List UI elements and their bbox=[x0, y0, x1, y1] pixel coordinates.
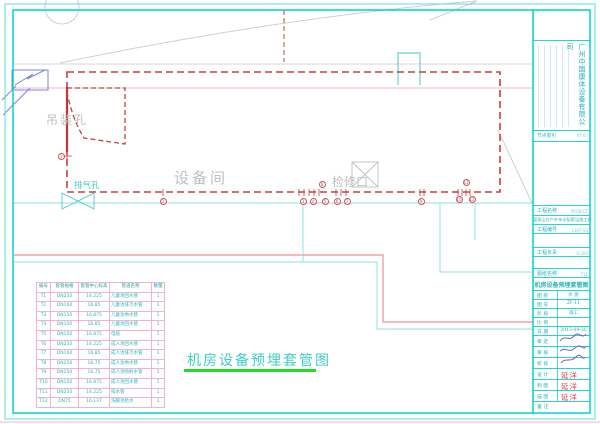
title-block-divider bbox=[533, 215, 590, 216]
table-cell: DN150 bbox=[51, 312, 79, 322]
title-block-divider bbox=[533, 247, 590, 248]
sign-label: 制 图 bbox=[537, 382, 548, 389]
table-cell: DN75 bbox=[51, 398, 79, 408]
handwritten-signature bbox=[558, 354, 588, 368]
table-cell: DN250 bbox=[51, 360, 79, 370]
project-name-label: 工程名称 bbox=[537, 207, 557, 214]
balloon-4: 4 bbox=[310, 198, 317, 205]
table-cell: 儿童池回水管 bbox=[110, 321, 152, 331]
meta-label: 比 例 bbox=[537, 319, 548, 326]
table-cell: T11 bbox=[37, 389, 51, 399]
meta-value: 施工 bbox=[558, 310, 589, 316]
title-block-divider bbox=[533, 308, 590, 309]
table-cell: 儿童池回水管 bbox=[110, 293, 152, 303]
project-lead-value: 0.200 bbox=[558, 251, 588, 256]
table-cell: DN250 bbox=[51, 369, 79, 379]
table-cell: 电缆 bbox=[110, 331, 152, 341]
table-cell: 16.75 bbox=[79, 369, 110, 379]
drawing-name-label: 图纸名称 bbox=[537, 270, 557, 277]
sign-label: 设 计 bbox=[537, 371, 548, 378]
table-cell: 1 bbox=[152, 398, 165, 408]
drawing-name-value: 机房设备预埋套管图 bbox=[533, 280, 590, 289]
table-cell: 16.75 bbox=[79, 360, 110, 370]
sign-label: 描 图 bbox=[537, 393, 548, 400]
meta-label: 图 号 bbox=[537, 301, 548, 308]
title-block-divider bbox=[533, 205, 590, 206]
table-cell: 成人池喷射水管 bbox=[110, 369, 152, 379]
table-header-cell: 数量 bbox=[152, 283, 165, 293]
table-cell: 1 bbox=[152, 369, 165, 379]
company-info-microtext bbox=[538, 45, 572, 127]
title-block-divider bbox=[533, 141, 590, 142]
access-hatch-label: 检修口 bbox=[332, 173, 368, 190]
exhaust-fan-symbol bbox=[62, 193, 94, 209]
title-block-divider bbox=[533, 233, 590, 234]
balloon-1: 1 bbox=[58, 153, 65, 160]
sign-label: 审 定 bbox=[537, 338, 548, 345]
table-header-cell: 套管中心标高 bbox=[79, 283, 110, 293]
table-cell: 1 bbox=[152, 341, 165, 351]
table-cell: T9 bbox=[37, 369, 51, 379]
table-cell: 16.225 bbox=[79, 341, 110, 351]
table-cell: 16.875 bbox=[79, 312, 110, 322]
title-block-divider bbox=[533, 277, 590, 278]
table-cell: T10 bbox=[37, 379, 51, 389]
table-cell: DN250 bbox=[51, 293, 79, 303]
reviewer-stamp: 延洋 bbox=[561, 381, 578, 392]
title-underline bbox=[184, 369, 316, 372]
hoist-hole-label: 吊装孔 bbox=[46, 111, 88, 128]
table-cell: T1 bbox=[37, 293, 51, 303]
table-cell: 16.85 bbox=[79, 350, 110, 360]
node-index-label: 节点索引 bbox=[537, 132, 556, 139]
table-cell: T5 bbox=[37, 331, 51, 341]
title-block-divider bbox=[533, 326, 590, 327]
table-cell: 1 bbox=[152, 331, 165, 341]
table-cell: T2 bbox=[37, 302, 51, 312]
roof-opening bbox=[398, 53, 420, 85]
reviewer-stamp: 延洋 bbox=[561, 392, 578, 403]
note-label: 备 注 bbox=[537, 403, 549, 410]
table-cell: 1 bbox=[152, 312, 165, 322]
project-no-value: 1307-SS bbox=[558, 228, 588, 233]
table-cell: T4 bbox=[37, 321, 51, 331]
title-block-divider bbox=[533, 130, 590, 131]
red-dashed-outline bbox=[62, 10, 500, 196]
table-cell: 16.225 bbox=[79, 389, 110, 399]
table-cell: DN150 bbox=[51, 331, 79, 341]
table-cell: 成人池回水管 bbox=[110, 379, 152, 389]
table-header-cell: 编号 bbox=[37, 283, 51, 293]
sign-label: 校 核 bbox=[537, 360, 548, 367]
table-cell: T6 bbox=[37, 341, 51, 351]
table-cell: 成人池回水管 bbox=[110, 341, 152, 351]
table-cell: 16.85 bbox=[79, 321, 110, 331]
company-name: 广州中国康体设备有限公司 bbox=[576, 43, 588, 129]
table-cell: T3 bbox=[37, 312, 51, 322]
balloon-6: 6 bbox=[334, 198, 341, 205]
table-cell: T12 bbox=[37, 398, 51, 408]
meta-value: 水 施 bbox=[558, 292, 589, 298]
table-cell: DN100 bbox=[51, 321, 79, 331]
table-cell: DN100 bbox=[51, 302, 79, 312]
reviewer-stamp: 延洋 bbox=[561, 370, 578, 381]
table-cell: 1 bbox=[152, 302, 165, 312]
table-cell: 排水管 bbox=[110, 389, 152, 399]
balloon-2: 2 bbox=[160, 198, 167, 205]
table-cell: 儿童池排污水管 bbox=[110, 302, 152, 312]
equipment-room-label: 设备间 bbox=[174, 167, 228, 188]
table-cell: 16.85 bbox=[79, 302, 110, 312]
table-cell: 1 bbox=[152, 389, 165, 399]
sign-label: 审 核 bbox=[537, 349, 548, 356]
table-cell: 成人池排污水管 bbox=[110, 350, 152, 360]
table-cell: 1 bbox=[152, 321, 165, 331]
table-cell: 儿童池供水管 bbox=[110, 312, 152, 322]
project-name-value: 温泉山庄户外亲水配套设施工程 bbox=[533, 217, 590, 223]
title-block-divider bbox=[533, 290, 590, 291]
title-block-divider bbox=[533, 40, 590, 41]
balloon-7: 7 bbox=[344, 198, 351, 205]
construction-lines bbox=[45, 0, 532, 203]
table-cell: 1 bbox=[152, 293, 165, 303]
table-cell: 16.137 bbox=[79, 398, 110, 408]
exhaust-hole-label: 排气孔 bbox=[74, 179, 100, 191]
balloon-9: 9 bbox=[418, 198, 425, 205]
meta-label: 图 别 bbox=[537, 292, 548, 299]
balloon-10: 10 bbox=[456, 196, 463, 203]
balloon-11: 11 bbox=[463, 179, 470, 186]
table-cell: DN100 bbox=[51, 350, 79, 360]
balloon-8: 8 bbox=[319, 181, 326, 188]
table-cell: DN150 bbox=[51, 379, 79, 389]
balloon-12: 12 bbox=[469, 196, 476, 203]
drawing-name-tag: T11 bbox=[558, 272, 588, 277]
meta-value: ZF-11 bbox=[558, 301, 589, 306]
node-index-value: KT-03 bbox=[560, 133, 588, 138]
table-cell: 1 bbox=[152, 350, 165, 360]
table-cell: 洗脚池给水 bbox=[110, 398, 152, 408]
table-cell: T7 bbox=[37, 350, 51, 360]
project-no-label: 工程编号 bbox=[537, 226, 557, 233]
table-cell: 1 bbox=[152, 360, 165, 370]
title-block-divider bbox=[533, 299, 590, 300]
balloon-3: 3 bbox=[300, 198, 307, 205]
meta-label: 日 期 bbox=[537, 328, 548, 335]
title-block-divider bbox=[533, 224, 590, 225]
title-block-divider bbox=[533, 317, 590, 318]
title-block-divider bbox=[533, 256, 590, 257]
table-cell: T8 bbox=[37, 360, 51, 370]
title-block-divider bbox=[533, 268, 590, 269]
table-cell: 16.875 bbox=[79, 331, 110, 341]
table-cell: DN250 bbox=[51, 389, 79, 399]
table-cell: 成人池供水管 bbox=[110, 360, 152, 370]
balloon-5: 5 bbox=[322, 198, 329, 205]
table-cell: 16.875 bbox=[79, 379, 110, 389]
table-cell: 16.225 bbox=[79, 293, 110, 303]
table-header-cell: 套管规格 bbox=[51, 283, 79, 293]
sleeve-schedule-table: 编号套管规格套管中心标高管道名称数量T1DN25016.225儿童池回水管1T2… bbox=[36, 282, 165, 408]
project-lead-label: 工程负责 bbox=[537, 249, 557, 256]
project-name-tag: PROJECT bbox=[558, 209, 588, 214]
table-cell: DN250 bbox=[51, 341, 79, 351]
drawing-title: 机房设备预埋套管图 bbox=[187, 350, 331, 370]
table-header-cell: 管道名称 bbox=[110, 283, 152, 293]
break-symbol bbox=[2, 70, 48, 115]
table-cell: 1 bbox=[152, 379, 165, 389]
meta-label: 阶 段 bbox=[537, 310, 548, 317]
